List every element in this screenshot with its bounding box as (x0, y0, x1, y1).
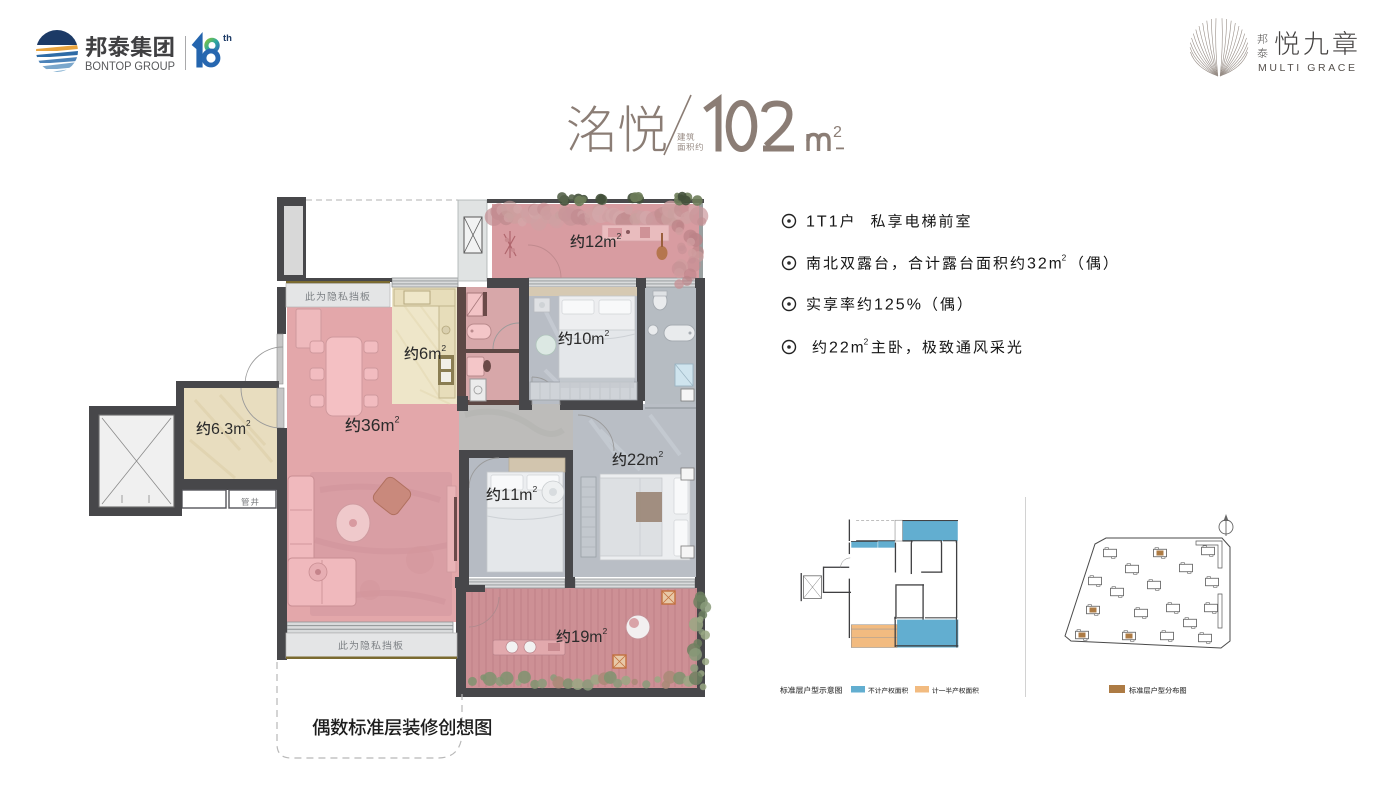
svg-text:2: 2 (636, 451, 645, 469)
svg-text:2: 2 (594, 233, 603, 251)
svg-text:1: 1 (829, 214, 838, 231)
svg-text:2: 2 (864, 337, 869, 347)
svg-text:6: 6 (419, 345, 428, 363)
svg-text:m: m (428, 346, 441, 363)
svg-text:1: 1 (585, 233, 594, 251)
svg-text:%: % (907, 297, 921, 314)
svg-text:2: 2 (829, 340, 838, 357)
svg-text:2: 2 (441, 343, 446, 353)
svg-text:2: 2 (605, 328, 610, 338)
svg-text:2: 2 (885, 297, 894, 314)
svg-text:1: 1 (501, 486, 510, 504)
svg-text:2: 2 (833, 124, 842, 141)
svg-text:2: 2 (1062, 253, 1067, 263)
svg-text:6: 6 (371, 415, 381, 435)
svg-text:BONTOP GROUP: BONTOP GROUP (85, 59, 175, 73)
svg-text:3: 3 (1027, 256, 1036, 273)
svg-text:m: m (591, 331, 604, 348)
svg-text:1: 1 (806, 214, 815, 231)
svg-text:1: 1 (874, 297, 883, 314)
svg-text:T: T (817, 214, 827, 231)
svg-text:2: 2 (603, 626, 608, 636)
svg-text:m: m (603, 234, 616, 251)
svg-text:2: 2 (246, 418, 251, 428)
svg-text:5: 5 (896, 297, 905, 314)
svg-text:m: m (851, 340, 864, 357)
svg-text:1: 1 (571, 628, 580, 646)
svg-text:2: 2 (533, 484, 538, 494)
svg-text:3: 3 (361, 415, 371, 435)
svg-text:m: m (589, 629, 602, 646)
svg-text:2: 2 (840, 340, 849, 357)
svg-text:m: m (519, 487, 532, 504)
svg-text:1: 1 (510, 486, 519, 504)
svg-text:6: 6 (211, 421, 220, 438)
svg-text:2: 2 (1038, 256, 1047, 273)
svg-text:m: m (1049, 256, 1062, 273)
svg-text:0: 0 (582, 330, 591, 348)
svg-text:2: 2 (659, 449, 664, 459)
svg-text:3: 3 (224, 421, 233, 438)
svg-text:2: 2 (627, 451, 636, 469)
svg-text:th: th (223, 33, 232, 44)
svg-text:m: m (381, 416, 395, 435)
svg-text:1: 1 (573, 330, 582, 348)
svg-text:9: 9 (580, 628, 589, 646)
svg-text:2: 2 (617, 231, 622, 241)
svg-text:m: m (645, 452, 658, 469)
svg-text:2: 2 (395, 415, 400, 425)
svg-text:MULTI GRACE: MULTI GRACE (1258, 62, 1358, 74)
svg-text:m: m (233, 421, 246, 438)
